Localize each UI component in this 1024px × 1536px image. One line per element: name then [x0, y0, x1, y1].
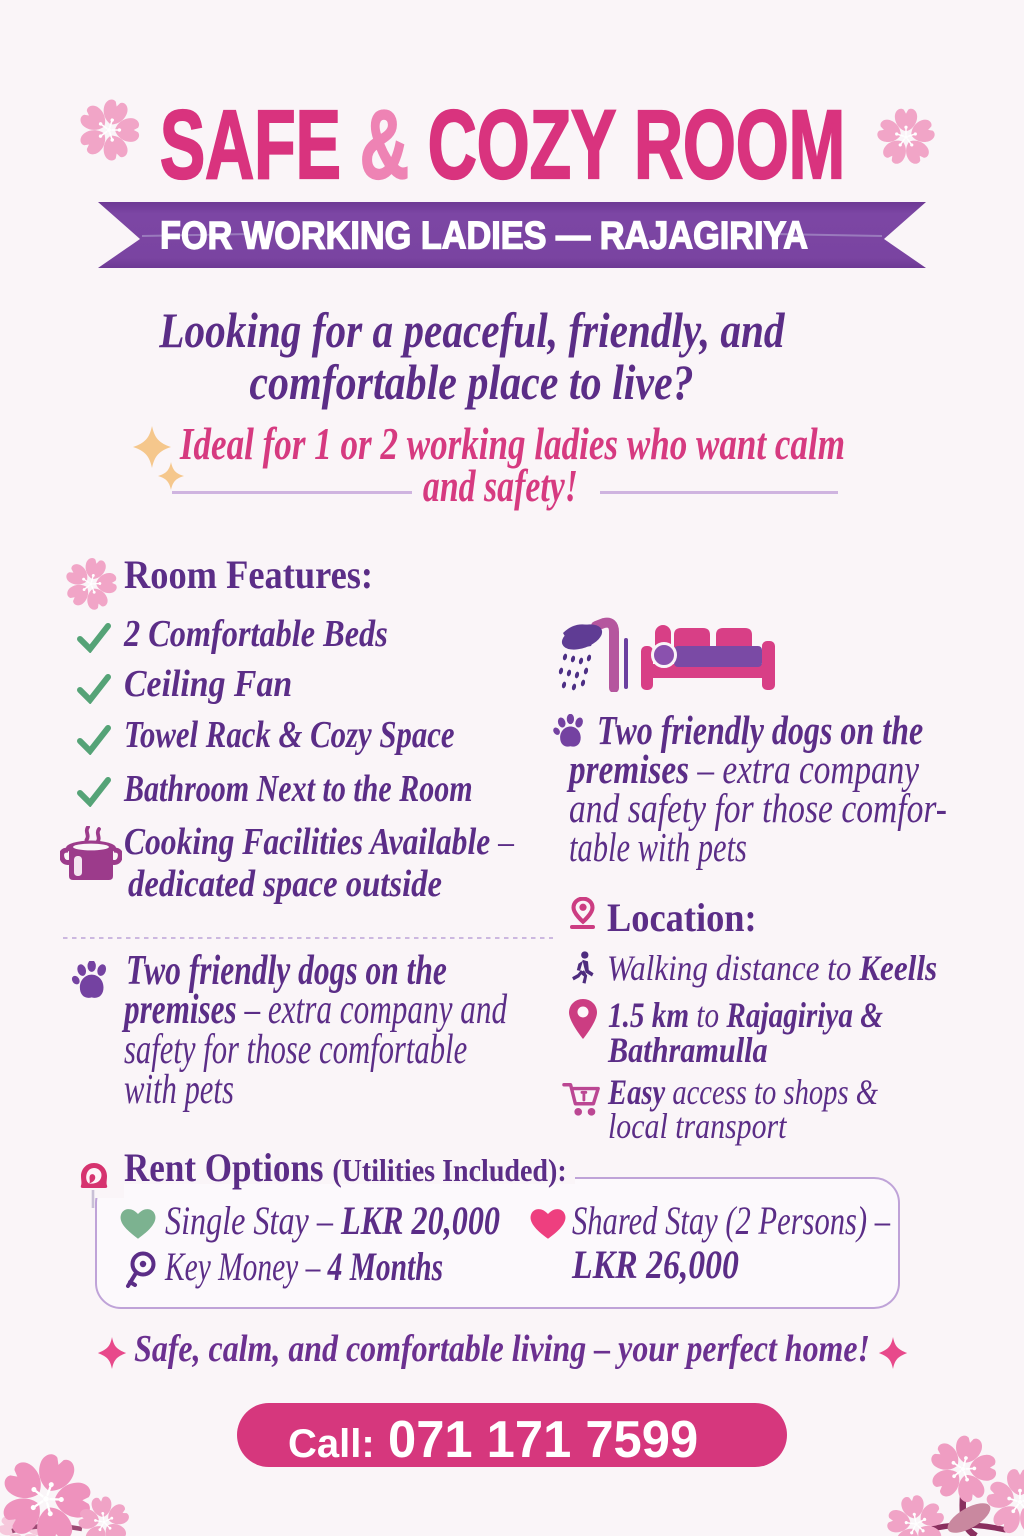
svg-text:FOR WORKING LADIES — RAJAGIRIY: FOR WORKING LADIES — RAJAGIRIYA: [160, 213, 808, 257]
